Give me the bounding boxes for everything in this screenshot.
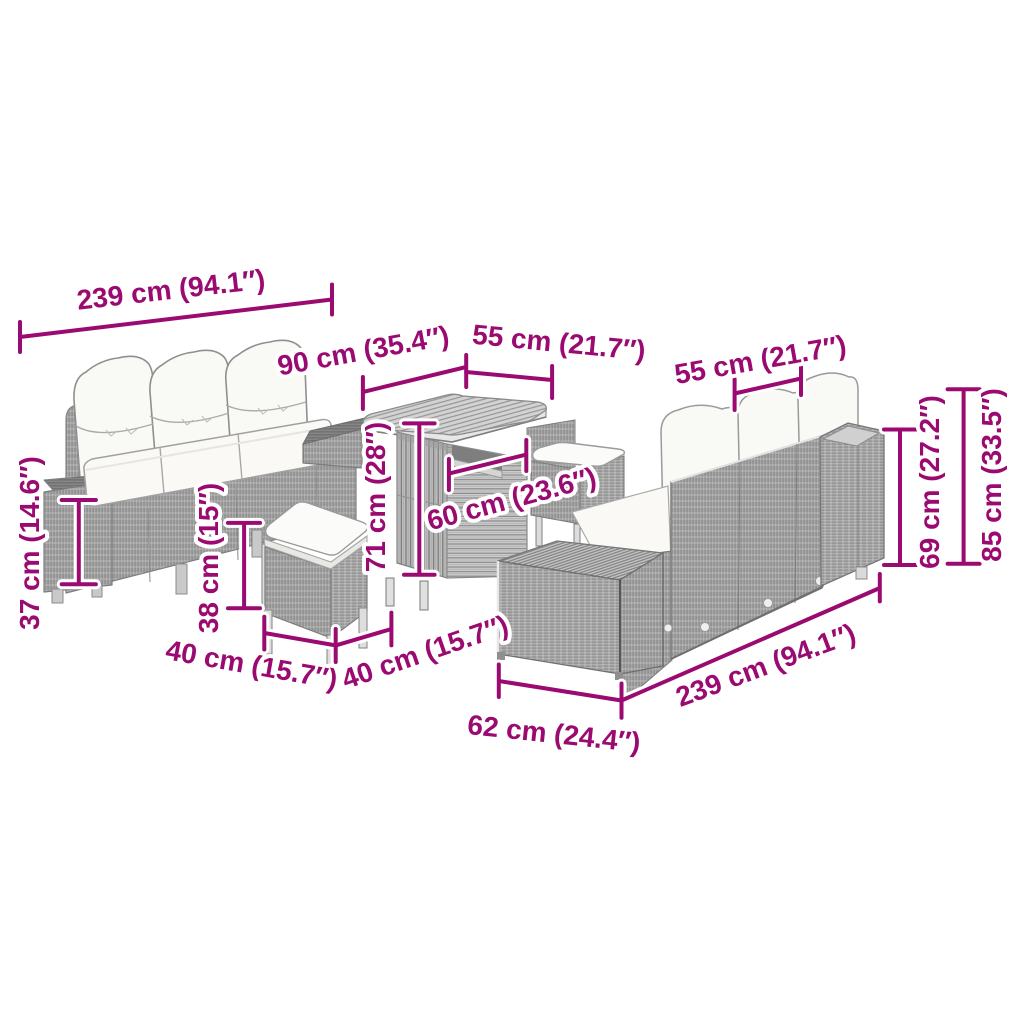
svg-text:37 cm (14.6″): 37 cm (14.6″) [14, 456, 45, 630]
svg-text:62 cm (24.4″): 62 cm (24.4″) [466, 709, 642, 758]
svg-text:38 cm (15″): 38 cm (15″) [193, 483, 224, 633]
svg-text:55 cm (21.7″): 55 cm (21.7″) [471, 319, 647, 367]
svg-text:85 cm (33.5″): 85 cm (33.5″) [976, 388, 1007, 562]
svg-text:69 cm (27.2″): 69 cm (27.2″) [914, 395, 945, 569]
svg-text:71 cm (28″): 71 cm (28″) [360, 422, 391, 572]
